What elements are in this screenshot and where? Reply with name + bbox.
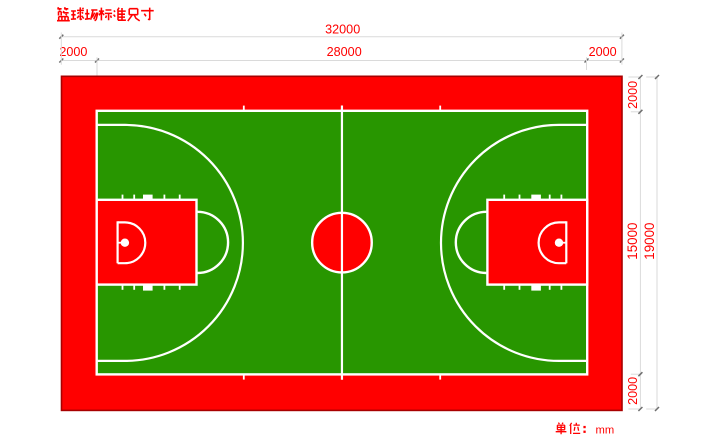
svg-text:28000: 28000 <box>327 45 362 59</box>
svg-text:2000: 2000 <box>589 45 617 59</box>
svg-text:15000: 15000 <box>625 222 640 259</box>
svg-text:2000: 2000 <box>59 45 87 59</box>
svg-text:2000: 2000 <box>626 377 640 405</box>
svg-text:2000: 2000 <box>626 81 640 109</box>
svg-text:mm: mm <box>596 425 615 437</box>
svg-text:19000: 19000 <box>642 222 657 259</box>
svg-text:32000: 32000 <box>325 23 360 37</box>
